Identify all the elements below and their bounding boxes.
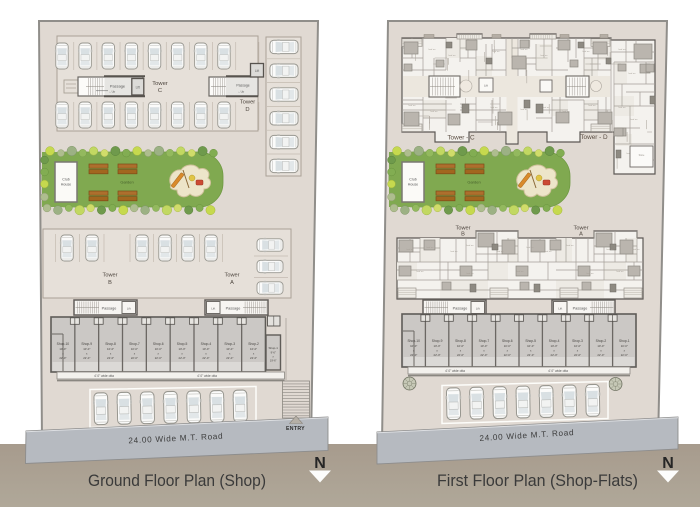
svg-text:10'-0": 10'-0" xyxy=(621,344,628,348)
svg-text:bed rm: bed rm xyxy=(541,54,548,57)
svg-text:22'-0": 22'-0" xyxy=(226,356,233,360)
svg-text:Shop-2: Shop-2 xyxy=(596,339,607,343)
svg-text:←Up: ←Up xyxy=(109,89,116,93)
svg-text:Lift: Lift xyxy=(127,306,131,310)
svg-text:10'-0": 10'-0" xyxy=(504,344,511,348)
svg-text:bed rm: bed rm xyxy=(517,270,524,273)
svg-text:D: D xyxy=(245,107,249,113)
svg-text:←Up: ←Up xyxy=(238,89,245,93)
svg-text:bed rm: bed rm xyxy=(491,106,498,109)
svg-text:Shop-9: Shop-9 xyxy=(81,342,92,346)
svg-text:House: House xyxy=(61,183,71,187)
svg-text:bed rm: bed rm xyxy=(619,48,626,51)
svg-text:Tower: Tower xyxy=(225,273,240,279)
svg-text:bed rm: bed rm xyxy=(467,272,474,275)
svg-text:22'-0": 22'-0" xyxy=(250,356,257,360)
svg-text:bed rm: bed rm xyxy=(587,272,594,275)
svg-text:bed rm: bed rm xyxy=(631,118,638,121)
svg-text:Tower - D: Tower - D xyxy=(580,134,608,141)
svg-text:Passage: Passage xyxy=(236,84,249,88)
svg-text:10'-0": 10'-0" xyxy=(155,347,162,351)
svg-text:Lift: Lift xyxy=(558,306,562,310)
svg-text:bed rm: bed rm xyxy=(607,248,614,251)
svg-text:10'-0": 10'-0" xyxy=(131,347,138,351)
svg-text:Tower: Tower xyxy=(240,100,256,106)
svg-text:22'-0": 22'-0" xyxy=(621,353,628,357)
svg-text:Passage: Passage xyxy=(226,307,241,311)
svg-text:bed rm: bed rm xyxy=(451,250,458,253)
svg-text:Passage: Passage xyxy=(573,307,588,311)
svg-text:Shop-8: Shop-8 xyxy=(105,342,116,346)
svg-text:Shop-6: Shop-6 xyxy=(153,342,164,346)
svg-text:Tower: Tower xyxy=(103,273,118,279)
svg-text:19'-6": 19'-6" xyxy=(270,359,277,363)
svg-text:bed rm: bed rm xyxy=(617,270,624,273)
svg-text:22'-0": 22'-0" xyxy=(202,356,209,360)
svg-text:bed rm: bed rm xyxy=(407,248,414,251)
svg-text:Shop-1: Shop-1 xyxy=(619,339,630,343)
svg-text:4'.0" wide otta: 4'.0" wide otta xyxy=(548,369,568,373)
svg-text:bed rm: bed rm xyxy=(545,250,552,253)
svg-text:22'-0": 22'-0" xyxy=(83,356,90,360)
svg-text:bed rm: bed rm xyxy=(467,244,474,247)
svg-text:Shop-6: Shop-6 xyxy=(502,339,513,343)
svg-text:10'-0": 10'-0" xyxy=(551,344,558,348)
svg-text:bed rm: bed rm xyxy=(567,244,574,247)
svg-text:Shop-9: Shop-9 xyxy=(432,339,443,343)
svg-text:Club: Club xyxy=(62,178,69,182)
svg-text:4'.0" wide otta: 4'.0" wide otta xyxy=(445,369,465,373)
svg-text:Lift: Lift xyxy=(484,84,488,88)
svg-text:Lift: Lift xyxy=(255,69,259,73)
svg-text:10'-0": 10'-0" xyxy=(527,344,534,348)
svg-text:bed rm: bed rm xyxy=(427,246,434,249)
svg-text:Shop-3: Shop-3 xyxy=(572,339,583,343)
svg-text:Lift: Lift xyxy=(136,86,140,90)
svg-text:10'-0": 10'-0" xyxy=(410,344,417,348)
svg-text:10'-0": 10'-0" xyxy=(250,347,257,351)
svg-text:10'-0": 10'-0" xyxy=(597,344,604,348)
svg-text:Shop-4: Shop-4 xyxy=(549,339,560,343)
svg-text:22'-0": 22'-0" xyxy=(179,356,186,360)
svg-text:Passage: Passage xyxy=(110,84,125,89)
svg-text:bed rm: bed rm xyxy=(527,246,534,249)
svg-text:bed rm: bed rm xyxy=(417,270,424,273)
svg-text:bed rm: bed rm xyxy=(431,110,438,113)
svg-text:22'-0": 22'-0" xyxy=(480,353,487,357)
svg-text:22'-0": 22'-0" xyxy=(504,353,511,357)
svg-text:Garden: Garden xyxy=(120,180,133,185)
svg-text:B: B xyxy=(108,280,112,286)
svg-text:N: N xyxy=(662,455,674,472)
svg-text:A: A xyxy=(579,232,583,238)
svg-text:22'-0": 22'-0" xyxy=(574,353,581,357)
svg-text:bed rm: bed rm xyxy=(409,104,416,107)
svg-text:bed rm: bed rm xyxy=(497,250,504,253)
svg-text:bed rm: bed rm xyxy=(429,48,436,51)
svg-text:Shop-5: Shop-5 xyxy=(525,339,536,343)
svg-text:Store: Store xyxy=(639,154,645,157)
svg-text:bed rm: bed rm xyxy=(543,106,550,109)
svg-text:22'-0": 22'-0" xyxy=(457,353,464,357)
svg-text:Passage: Passage xyxy=(453,307,468,311)
svg-text:bed rm: bed rm xyxy=(521,48,528,51)
svg-text:Shop-10: Shop-10 xyxy=(57,342,70,346)
svg-text:Passage: Passage xyxy=(102,307,117,311)
svg-text:B: B xyxy=(461,232,465,238)
svg-text:22'-0": 22'-0" xyxy=(155,356,162,360)
svg-text:bed rm: bed rm xyxy=(493,50,500,53)
svg-text:House: House xyxy=(408,183,418,187)
svg-text:bed rm: bed rm xyxy=(589,104,596,107)
svg-text:Shop-7: Shop-7 xyxy=(129,342,140,346)
svg-text:10'-0": 10'-0" xyxy=(434,344,441,348)
svg-text:Shop-1: Shop-1 xyxy=(269,346,279,350)
svg-text:First Floor Plan (Shop-Flats): First Floor Plan (Shop-Flats) xyxy=(437,471,638,490)
svg-text:A: A xyxy=(230,280,234,286)
svg-text:Lift: Lift xyxy=(211,306,215,310)
svg-text:N: N xyxy=(314,455,326,472)
svg-text:10'-0": 10'-0" xyxy=(226,347,233,351)
svg-text:Tower - C: Tower - C xyxy=(447,135,475,142)
svg-text:4'.0" wide otta: 4'.0" wide otta xyxy=(197,374,217,378)
svg-text:9'-6": 9'-6" xyxy=(271,351,276,355)
svg-text:bed rm: bed rm xyxy=(619,106,626,109)
svg-text:Shop-7: Shop-7 xyxy=(479,339,490,343)
svg-text:Lift: Lift xyxy=(476,306,480,310)
svg-text:bed rm: bed rm xyxy=(521,108,528,111)
svg-text:Shop-10: Shop-10 xyxy=(407,339,420,343)
svg-text:ENTRY: ENTRY xyxy=(286,426,305,432)
svg-text:10'-0": 10'-0" xyxy=(457,344,464,348)
svg-text:22'-0": 22'-0" xyxy=(527,353,534,357)
svg-text:22'-0": 22'-0" xyxy=(59,356,66,360)
svg-text:bed rm: bed rm xyxy=(629,72,636,75)
svg-text:10'-0": 10'-0" xyxy=(59,347,66,351)
svg-text:10'-0": 10'-0" xyxy=(179,347,186,351)
svg-text:22'-0": 22'-0" xyxy=(131,356,138,360)
svg-text:C: C xyxy=(158,88,162,94)
svg-text:Shop-2: Shop-2 xyxy=(248,342,259,346)
svg-text:bed rm: bed rm xyxy=(449,54,456,57)
svg-text:Club: Club xyxy=(409,178,416,182)
svg-text:Shop-5: Shop-5 xyxy=(177,342,188,346)
svg-text:10'-0": 10'-0" xyxy=(83,347,90,351)
svg-text:bed rm: bed rm xyxy=(633,248,640,251)
svg-text:10'-0": 10'-0" xyxy=(574,344,581,348)
svg-text:22'-0": 22'-0" xyxy=(434,353,441,357)
svg-text:Shop-8: Shop-8 xyxy=(455,339,466,343)
svg-text:Garden: Garden xyxy=(467,180,480,185)
svg-text:bed rm: bed rm xyxy=(583,50,590,53)
svg-text:Tower: Tower xyxy=(152,81,168,87)
svg-text:22'-0": 22'-0" xyxy=(107,356,114,360)
svg-text:22'-0": 22'-0" xyxy=(597,353,604,357)
svg-text:4'.0" wide otta: 4'.0" wide otta xyxy=(94,374,114,378)
svg-text:22'-0": 22'-0" xyxy=(551,353,558,357)
svg-text:10'-0": 10'-0" xyxy=(202,347,209,351)
svg-text:Ground Floor Plan (Shop): Ground Floor Plan (Shop) xyxy=(88,471,266,490)
svg-text:10'-0": 10'-0" xyxy=(480,344,487,348)
svg-text:22'-0": 22'-0" xyxy=(410,353,417,357)
svg-text:Shop-3: Shop-3 xyxy=(224,342,235,346)
svg-text:10'-0": 10'-0" xyxy=(107,347,114,351)
svg-text:Shop-4: Shop-4 xyxy=(201,342,212,346)
